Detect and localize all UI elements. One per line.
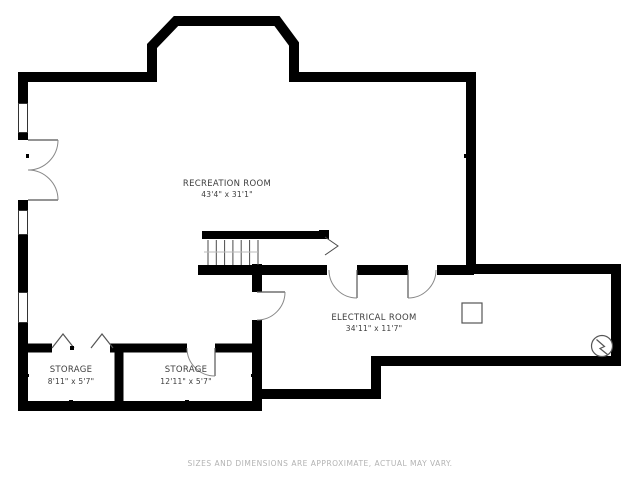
furnace-icon — [462, 303, 482, 323]
storage-large-dimensions: 12'11" x 5'7" — [160, 377, 211, 386]
window-icon — [16, 210, 30, 235]
door-swing-icon — [257, 292, 285, 320]
floor-plan-image: RECREATION ROOM 43'4" x 31'1" ELECTRICAL… — [0, 0, 640, 480]
electrical-room-name: ELECTRICAL ROOM — [331, 313, 416, 323]
electrical-panel-icon — [592, 336, 613, 357]
window-icon — [16, 103, 30, 133]
door-swing-icon — [408, 270, 436, 298]
disclaimer-text: SIZES AND DIMENSIONS ARE APPROXIMATE, AC… — [187, 459, 452, 468]
door-swing-icon — [329, 270, 357, 298]
double-door-icon — [28, 140, 58, 200]
storage-small-name: STORAGE — [50, 365, 93, 375]
walls — [23, 21, 616, 411]
room-labels: RECREATION ROOM 43'4" x 31'1" ELECTRICAL… — [48, 179, 417, 386]
stairs-direction-chevron-icon — [325, 237, 338, 255]
bifold-door-icon — [52, 334, 113, 348]
recreation-room-name: RECREATION ROOM — [183, 179, 271, 189]
stair-wall-end-cap — [319, 230, 329, 239]
stairs-icon — [204, 237, 338, 265]
window-icon — [16, 292, 30, 323]
floor-plan-canvas: RECREATION ROOM 43'4" x 31'1" ELECTRICAL… — [0, 0, 640, 480]
outer-wall-bottom — [23, 269, 616, 406]
storage-small-dimensions: 8'11" x 5'7" — [48, 377, 95, 386]
electrical-room-dimensions: 34'11" x 11'7" — [346, 324, 402, 333]
recreation-room-dimensions: 43'4" x 31'1" — [201, 190, 252, 199]
storage-large-name: STORAGE — [165, 365, 208, 375]
